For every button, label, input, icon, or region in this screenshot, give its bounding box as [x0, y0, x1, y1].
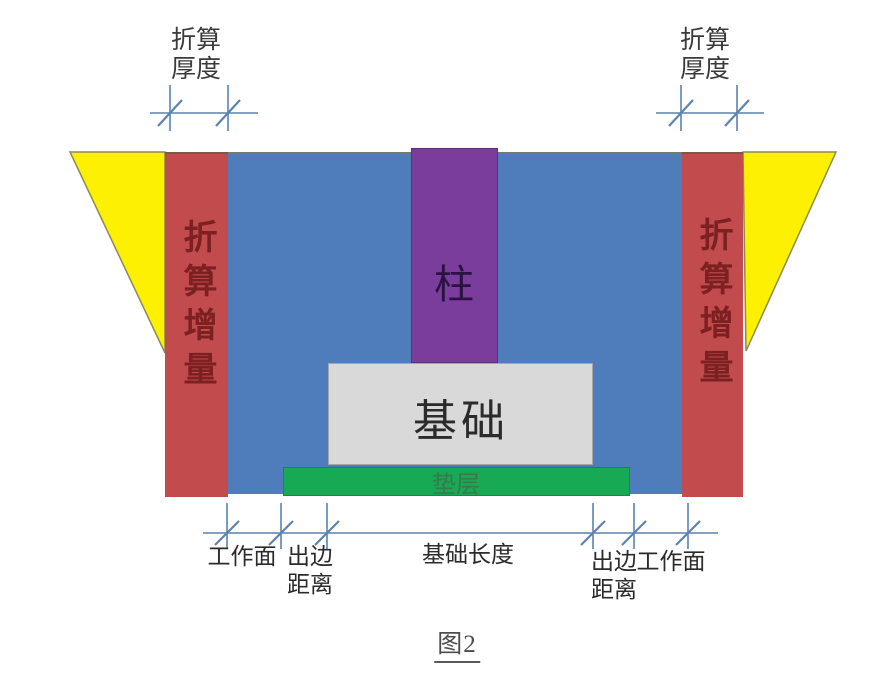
converted-thickness-label-right: 折算 厚度: [680, 27, 730, 84]
converted-increment-text-right: 折算增量: [688, 217, 737, 393]
cushion-label: 垫层: [432, 465, 480, 500]
converted-increment-text-left: 折算增量: [172, 219, 221, 395]
converted-increment-label-right: 折算增量: [682, 212, 743, 397]
work-face-label-right: 工作面: [637, 548, 706, 576]
figure-caption: 图2: [434, 624, 480, 663]
foundation-length-label: 基础长度: [422, 541, 514, 569]
converted-increment-label-left: 折算增量: [165, 214, 228, 399]
edge-distance-label-right: 出边 距离: [591, 548, 637, 604]
work-face-label-left: 工作面: [208, 543, 277, 571]
labels-layer: 折算 厚度 折算 厚度 折算增量 折算增量 柱 基础 垫层 工作面 出边 距离 …: [0, 0, 896, 687]
edge-distance-label-left: 出边 距离: [287, 543, 333, 599]
column-label: 柱: [434, 252, 474, 310]
converted-thickness-label-left: 折算 厚度: [171, 27, 221, 84]
figure-canvas: 折算 厚度 折算 厚度 折算增量 折算增量 柱 基础 垫层 工作面 出边 距离 …: [0, 0, 896, 687]
foundation-label: 基础: [413, 385, 509, 449]
